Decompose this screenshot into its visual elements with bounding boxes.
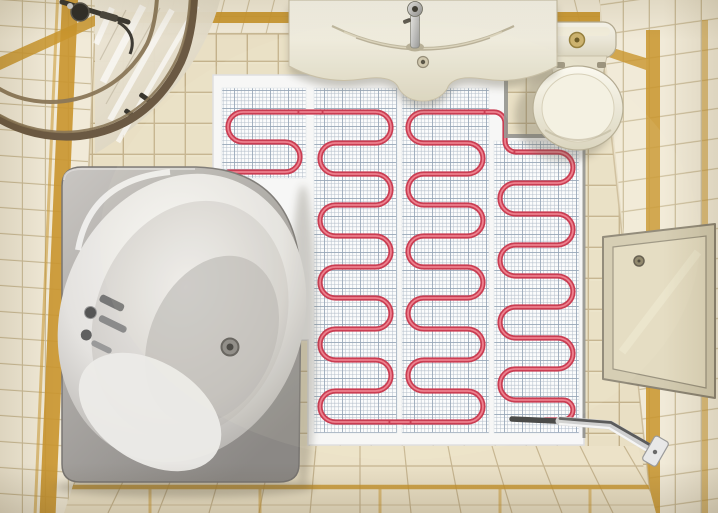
access-panel xyxy=(603,224,715,398)
bathroom-top-view-photo xyxy=(0,0,718,513)
mat-strip-1 xyxy=(222,88,306,178)
lid-hinge xyxy=(597,62,606,68)
bathroom-scene xyxy=(0,0,718,513)
